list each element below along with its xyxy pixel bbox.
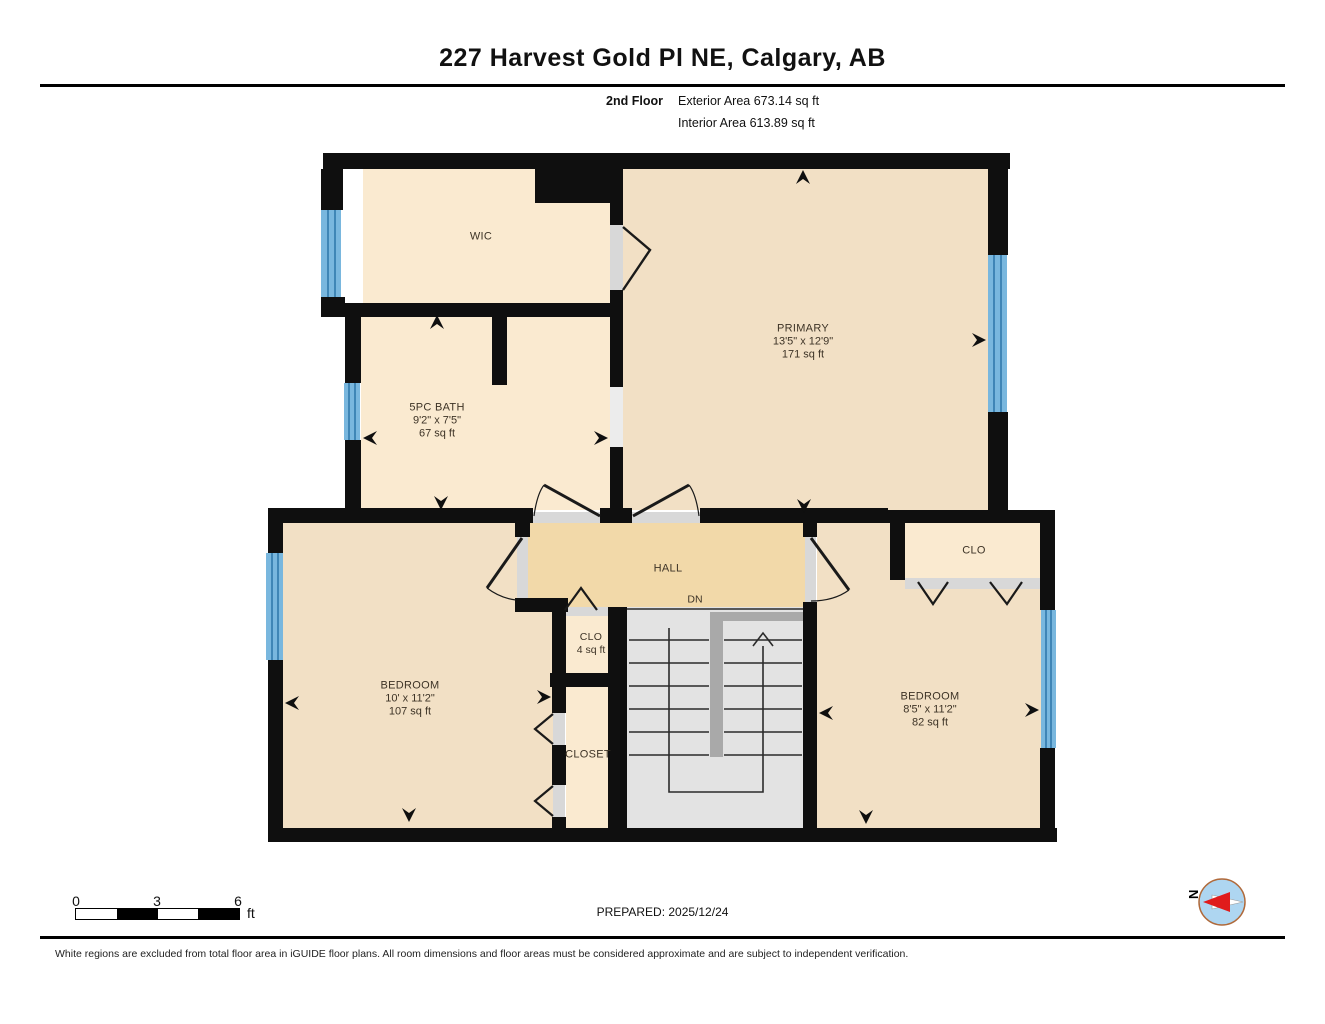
window-bedroom-left	[266, 553, 283, 660]
room-label-bath: 5PC BATH 9'2" x 7'5" 67 sq ft	[409, 402, 464, 441]
room-label-bedroom-left: BEDROOM 10' x 11'2" 107 sq ft	[381, 680, 440, 719]
stairs-down-label: DN	[687, 594, 702, 607]
prepared-date: PREPARED: 2025/12/24	[0, 905, 1325, 919]
floorplan-page: 227 Harvest Gold Pl NE, Calgary, AB 2nd …	[0, 0, 1325, 1024]
floorplan-drawing: N	[0, 0, 1325, 1024]
room-label-hall: HALL	[654, 563, 683, 576]
window-bedroom-right	[1041, 610, 1056, 748]
room-label-primary: PRIMARY 13'5" x 12'9" 171 sq ft	[773, 323, 833, 362]
window-bath	[344, 383, 360, 440]
footer-divider	[40, 936, 1285, 939]
compass-north-label: N	[1186, 890, 1201, 899]
window-primary	[988, 255, 1007, 412]
disclaimer-text: White regions are excluded from total fl…	[55, 948, 1275, 960]
window-wic	[321, 210, 341, 297]
room-label-wic: WIC	[470, 231, 492, 244]
room-label-bedroom-right: BEDROOM 8'5" x 11'2" 82 sq ft	[901, 691, 960, 730]
room-label-clo-hall: CLO 4 sq ft	[577, 631, 606, 657]
room-label-closet: CLOSET	[565, 749, 611, 762]
room-label-clo-bedroom: CLO	[962, 545, 986, 558]
